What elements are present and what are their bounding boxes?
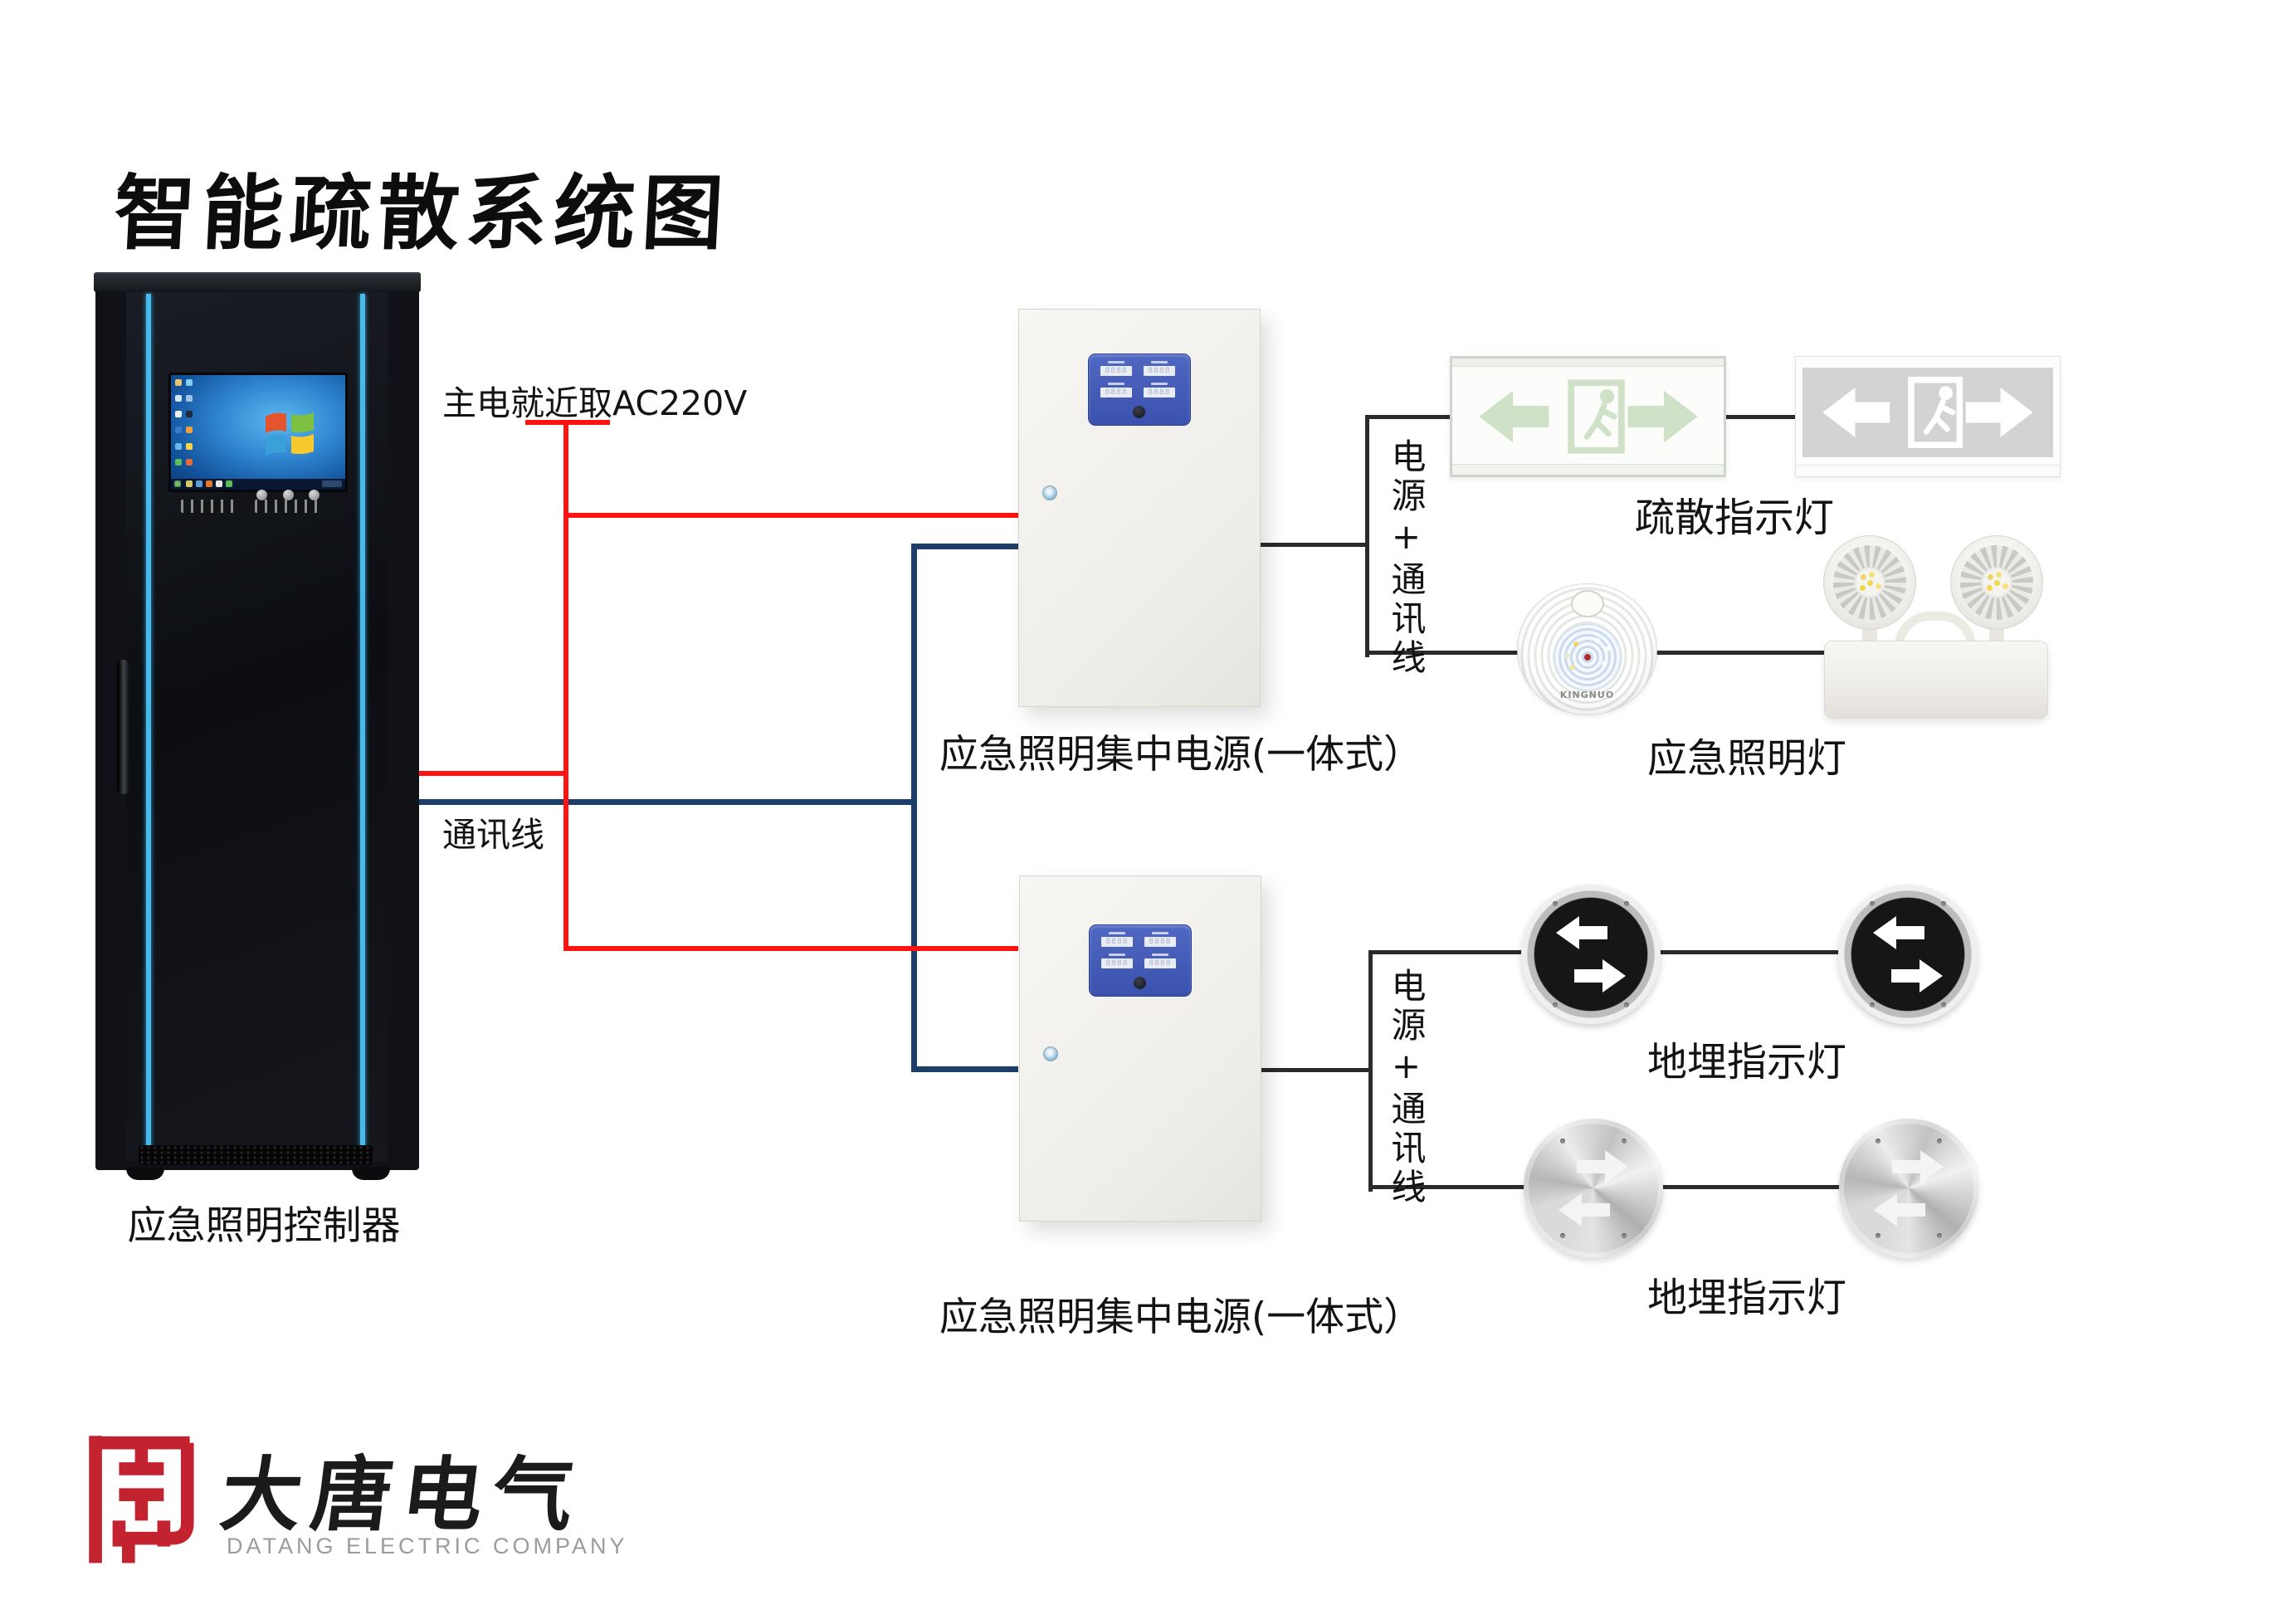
- main-power-label: 主电就近取AC220V: [442, 375, 747, 425]
- cabinet-control-panel-left: [181, 500, 234, 513]
- double-arrow-icon: [1868, 916, 1948, 992]
- page-title: 智能疏散系统图: [111, 148, 733, 266]
- power-wire-cabinet: [412, 771, 567, 776]
- branch1-label: 电源+通讯线: [1381, 438, 1432, 678]
- company-name-en: DATANG ELECTRIC COMPANY: [227, 1534, 628, 1559]
- cabinet-handle: [117, 660, 129, 794]
- power-wire-box1: [568, 513, 1018, 518]
- buried-light-black-1: [1521, 885, 1661, 1024]
- datang-seal-logo: [81, 1424, 199, 1570]
- device-wire-buried1-link: [1660, 950, 1840, 954]
- comm-wire-box1: [917, 544, 1018, 549]
- cabinet-foot-left: [126, 1167, 164, 1180]
- desktop-icons: [175, 379, 197, 471]
- cabinet-control-panel-right: [255, 500, 321, 513]
- power-box-1: 8888 8888 8888 8888: [1018, 309, 1261, 707]
- exit-sign-gray-panel: [1802, 368, 2053, 457]
- power-wire-box2: [568, 946, 1018, 951]
- comm-line-label: 通讯线: [442, 807, 544, 856]
- power-box-1-label: 应急照明集中电源(一体式）: [939, 722, 1422, 779]
- company-name: 大唐电气: [215, 1429, 591, 1546]
- double-arrow-icon: [1869, 1150, 1949, 1227]
- buried-light-label-2: 地埋指示灯: [1647, 1265, 1846, 1323]
- power-box-2-label: 应急照明集中电源(一体式）: [939, 1285, 1422, 1342]
- exit-sign-green: [1450, 356, 1726, 477]
- device-wire-to-buried1: [1373, 950, 1524, 954]
- light-led-core: [1553, 622, 1622, 692]
- emergency-light-label: 应急照明灯: [1647, 725, 1846, 783]
- brand-text: KINGNUO: [1560, 690, 1614, 700]
- device-wire-bracket2: [1368, 950, 1373, 1192]
- device-wire-buried2-link: [1661, 1185, 1841, 1189]
- double-arrow-icon: [1551, 916, 1631, 992]
- comm-wire-box2: [917, 1066, 1018, 1072]
- cabinet-knob-3: [309, 490, 320, 500]
- device-wire-to-sign1: [1369, 415, 1453, 419]
- exit-pictogram: [1464, 373, 1713, 460]
- twin-emergency-light-body: [1824, 641, 2048, 719]
- device-wire-box1-out: [1259, 543, 1369, 547]
- device-wire-box2-out: [1259, 1068, 1373, 1072]
- comm-wire-cabinet: [412, 799, 917, 805]
- cabinet-foot-right: [352, 1167, 390, 1180]
- device-wire-light-link: [1654, 651, 1826, 655]
- cabinet-vent: [139, 1145, 373, 1165]
- cabinet-knob-2: [283, 490, 294, 500]
- cabinet-accent-stripe-left: [146, 294, 151, 1160]
- device-wire-sign-link: [1726, 415, 1797, 419]
- taskbar: [171, 479, 345, 490]
- twin-light-head-left: [1823, 535, 1916, 630]
- cabinet-accent-stripe-right: [360, 294, 365, 1160]
- exit-sign-gray: [1795, 356, 2061, 477]
- cabinet-top-cap: [94, 272, 421, 292]
- exit-pictogram: [1807, 371, 2048, 454]
- panel-button: [1134, 977, 1146, 989]
- power-box-2: 8888 8888 8888 8888: [1019, 875, 1261, 1222]
- buried-light-steel-1: [1524, 1119, 1663, 1258]
- power-box-2-panel: 8888 8888 8888 8888: [1089, 924, 1192, 997]
- device-wire-bracket1: [1365, 415, 1369, 657]
- power-box-1-lock: [1042, 485, 1057, 500]
- power-box-1-panel: 8888 8888 8888 8888: [1088, 354, 1191, 426]
- cabinet-monitor: [168, 373, 348, 492]
- buried-light-black-2: [1838, 885, 1978, 1024]
- double-arrow-icon: [1554, 1150, 1633, 1227]
- panel-button: [1133, 406, 1145, 418]
- branch2-label: 电源+通讯线: [1381, 968, 1432, 1207]
- windows-flag-icon: [264, 410, 315, 458]
- power-box-2-lock: [1043, 1046, 1058, 1061]
- light-test-button: [1571, 590, 1604, 617]
- power-wire-riser: [563, 420, 568, 951]
- twin-light-head-right: [1950, 535, 2043, 630]
- ceiling-emergency-light: KINGNUO: [1517, 583, 1657, 715]
- comm-wire-riser: [911, 544, 917, 1072]
- buried-light-steel-2: [1839, 1119, 1978, 1258]
- buried-light-label-1: 地埋指示灯: [1647, 1029, 1846, 1087]
- evacuation-system-diagram: 智能疏散系统图 主电就近取AC220V 通讯线 电源+通讯线 电源+通讯线: [0, 0, 2278, 1624]
- exit-sign-label: 疏散指示灯: [1635, 485, 1834, 543]
- controller-label: 应急照明控制器: [128, 1193, 401, 1251]
- cabinet-knob-1: [256, 490, 267, 500]
